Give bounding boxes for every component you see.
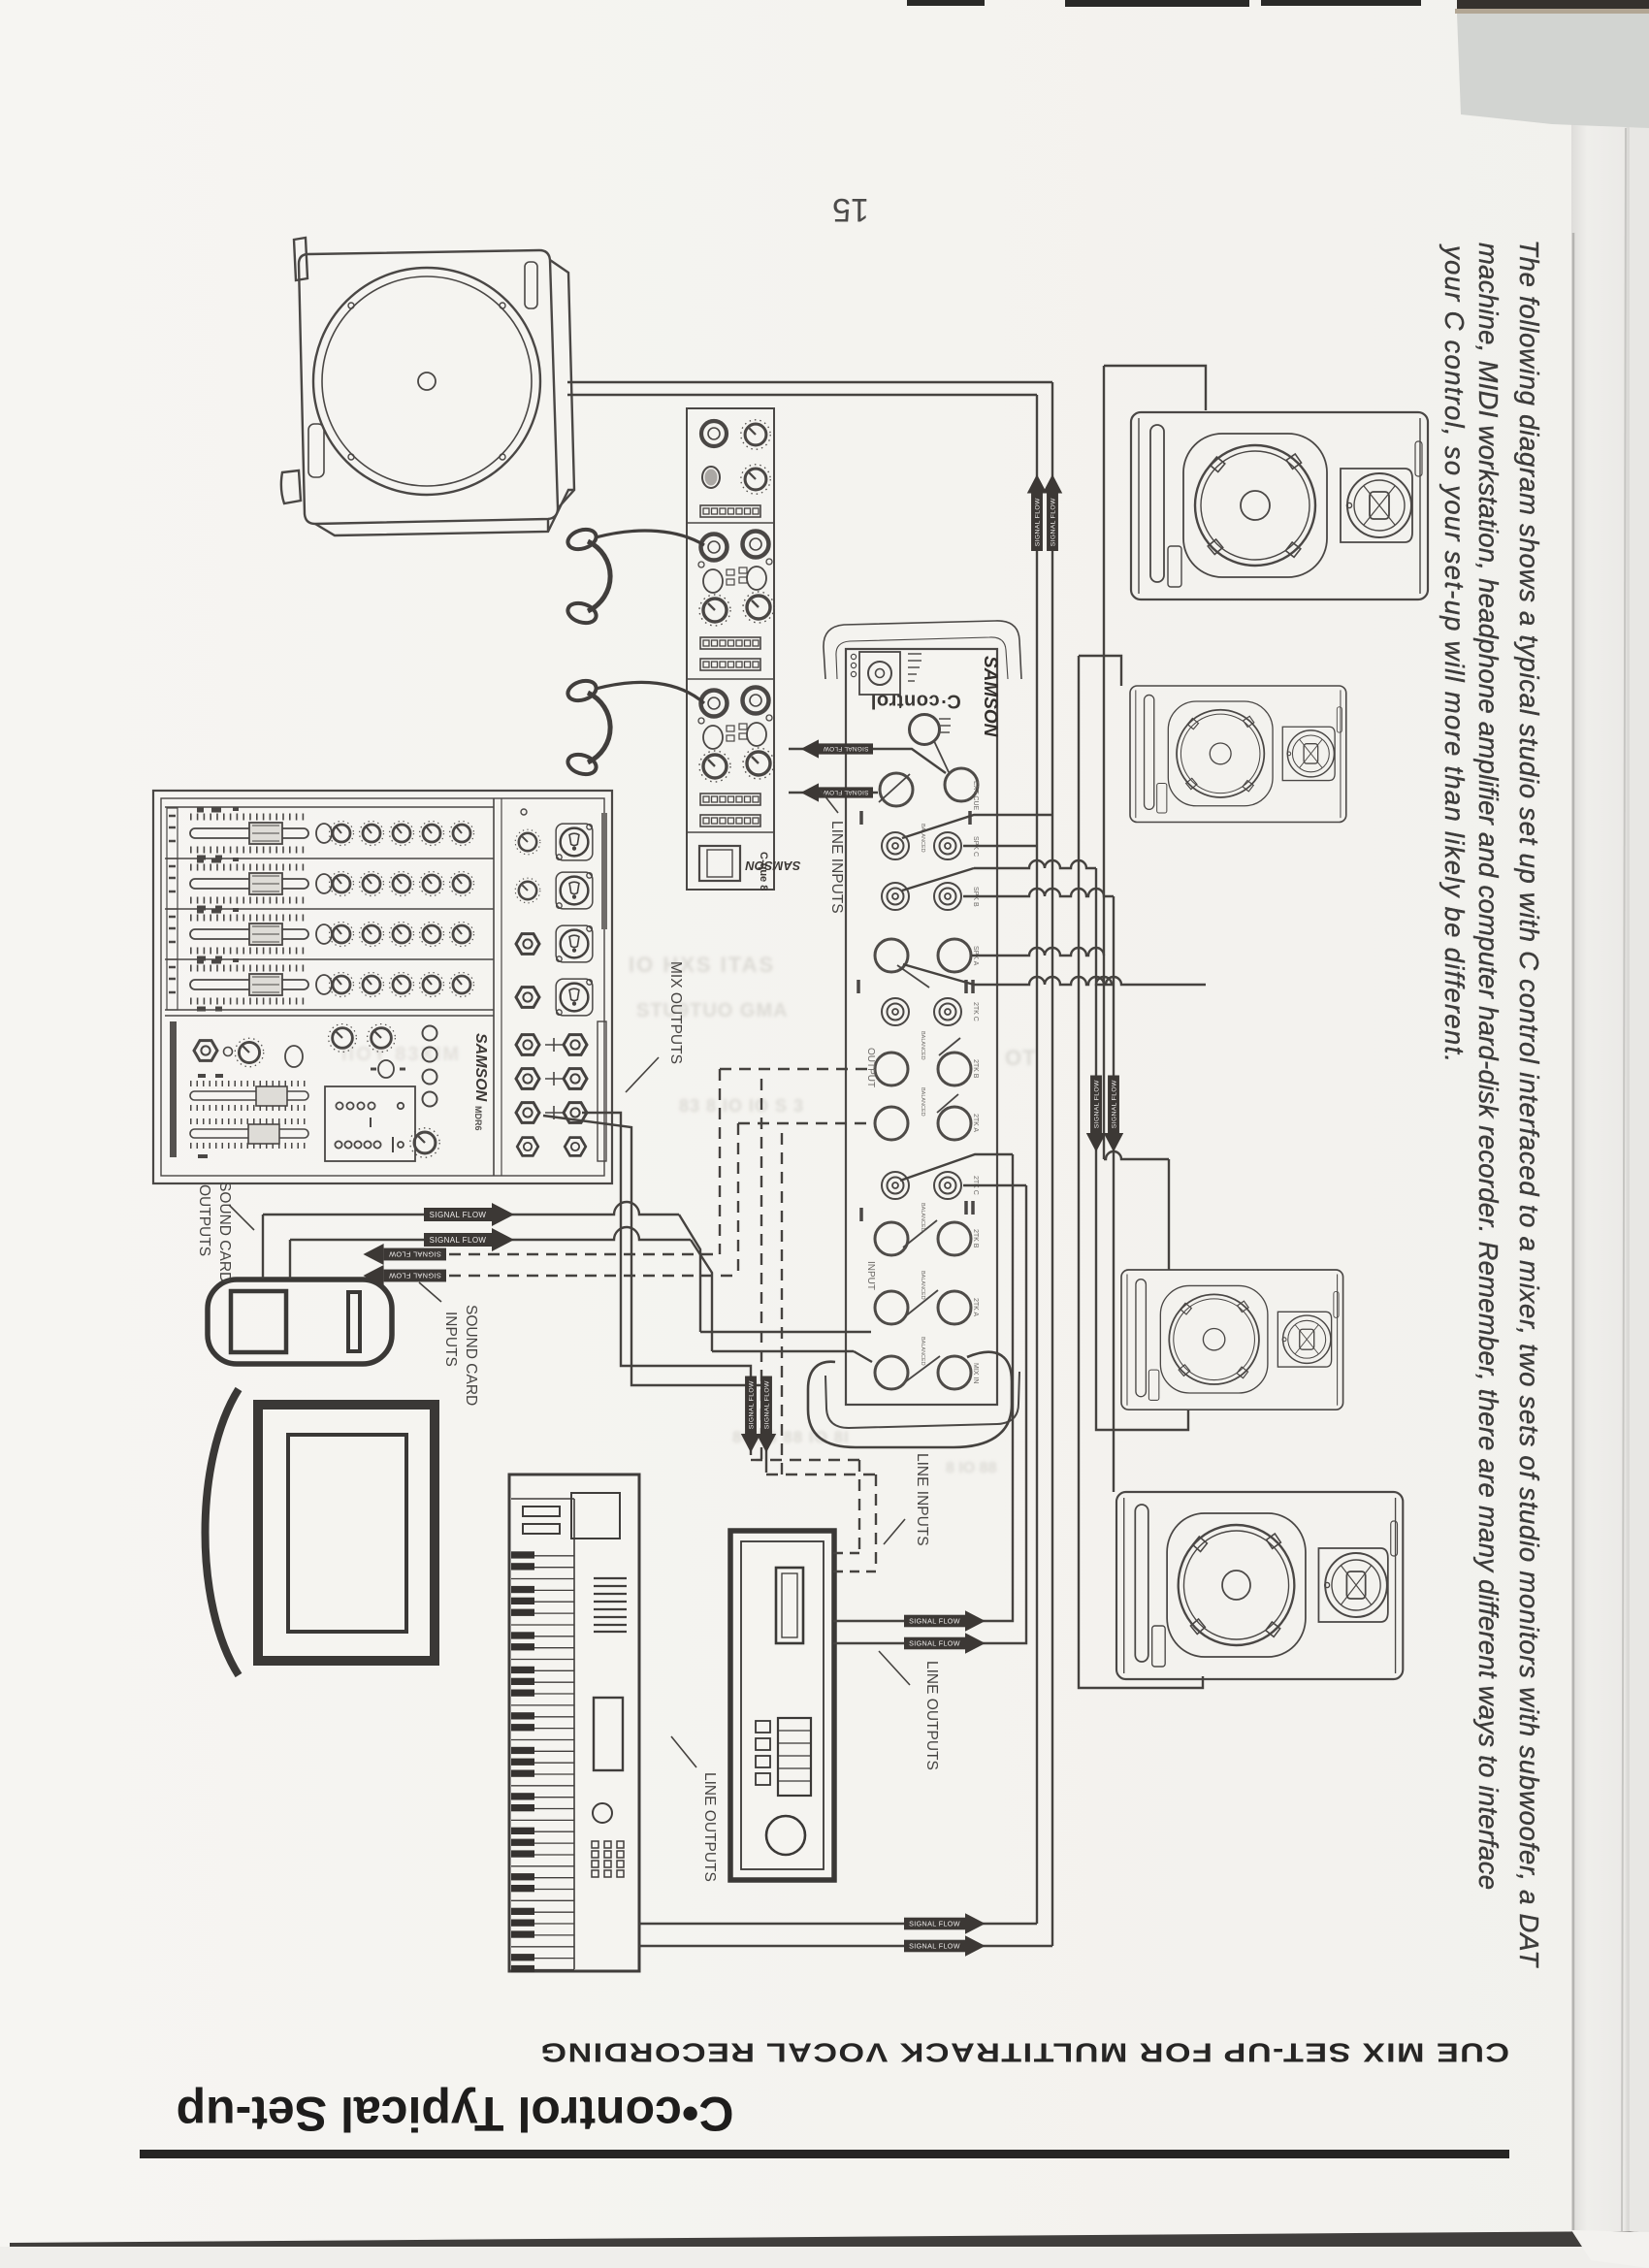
svg-text:15: 15 (832, 191, 869, 228)
svg-text:SAMSON: SAMSON (472, 1033, 489, 1102)
svg-text:IO HXS ITAS: IO HXS ITAS (629, 953, 775, 977)
svg-text:2TK B: 2TK B (972, 1059, 979, 1079)
svg-text:2TK A: 2TK A (972, 1298, 979, 1316)
svg-text:SAMSON: SAMSON (745, 859, 801, 873)
svg-text:MDR6: MDR6 (473, 1106, 483, 1131)
svg-text:BALANCED: BALANCED (920, 824, 925, 853)
svg-text:BALANCED: BALANCED (920, 1087, 925, 1117)
svg-text:OUTPUT: OUTPUT (865, 1048, 876, 1087)
svg-text:SAMSON: SAMSON (980, 656, 1000, 738)
svg-text:MIX OUTPUTS: MIX OUTPUTS (667, 961, 684, 1064)
svg-text:LINE OUTPUTS: LINE OUTPUTS (701, 1772, 718, 1882)
svg-text:2TK B: 2TK B (972, 1229, 979, 1248)
svg-text:BALANCED: BALANCED (920, 1337, 925, 1366)
svg-text:The following diagram shows a: The following diagram shows a typical st… (1514, 240, 1544, 1968)
svg-text:2TK C: 2TK C (972, 1002, 979, 1021)
svg-text:OUTPUTS: OUTPUTS (196, 1184, 212, 1256)
svg-text:EXT CUE: EXT CUE (972, 781, 979, 811)
svg-text:BALANCED: BALANCED (920, 1271, 925, 1300)
svg-text:BALANCED: BALANCED (920, 1031, 925, 1060)
svg-text:your C control, so your set-up: your C control, so your set-up will more… (1439, 243, 1470, 1062)
svg-text:SOUND CARD: SOUND CARD (463, 1305, 479, 1406)
svg-text:STU9TUO GMA: STU9TUO GMA (636, 1000, 789, 1021)
svg-text:LINE OUTPUTS: LINE OUTPUTS (923, 1661, 940, 1770)
svg-text:83 8 IO IO S 3: 83 8 IO IO S 3 (679, 1096, 804, 1116)
svg-text:INPUT: INPUT (865, 1261, 876, 1290)
svg-text:LINE INPUTS: LINE INPUTS (914, 1453, 930, 1546)
svg-text:BALANCED: BALANCED (920, 1203, 925, 1232)
svg-text:machine, MIDI workstation, hea: machine, MIDI workstation, headphone amp… (1473, 243, 1503, 1890)
svg-text:LINE INPUTS: LINE INPUTS (828, 821, 845, 914)
svg-text:INPUTS: INPUTS (442, 1312, 459, 1367)
svg-text:IIOY 83XIM: IIOY 83XIM (341, 1044, 461, 1065)
svg-text:C·control: C·control (870, 691, 960, 712)
svg-text:CUE MIX SET-UP FOR MULTITRACK: CUE MIX SET-UP FOR MULTITRACK VOCAL RECO… (539, 2038, 1509, 2068)
svg-text:2TK A: 2TK A (972, 1114, 979, 1132)
svg-text:MIX IN: MIX IN (972, 1363, 979, 1383)
svg-text:C•control Typical Set-up: C•control Typical Set-up (177, 2087, 734, 2141)
svg-text:SOUND CARD: SOUND CARD (216, 1182, 233, 1282)
svg-text:8 IO 88: 8 IO 88 (946, 1460, 997, 1476)
